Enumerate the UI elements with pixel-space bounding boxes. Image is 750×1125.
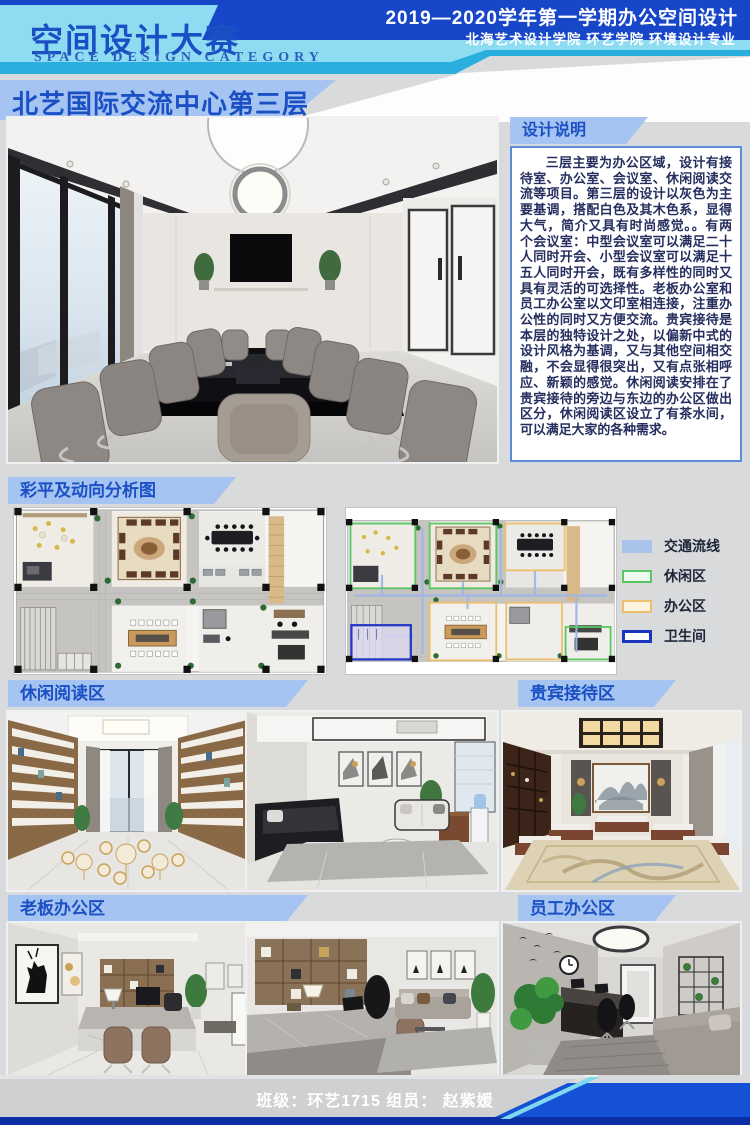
project-banner: 北艺国际交流中心第三层	[12, 84, 309, 121]
bench	[204, 1021, 236, 1033]
design-notes-label: 设计说明	[510, 117, 648, 144]
reading-room-plan	[19, 512, 94, 587]
legend-item-leisure: 休闲区	[622, 566, 748, 586]
floor-plan-analysis	[346, 508, 616, 674]
lounge-photo	[247, 712, 497, 890]
section-label-boss-office: 老板办公区	[8, 895, 308, 922]
legend-swatch-bathroom	[622, 630, 652, 643]
design-notes-text: 三层主要为办公区域，设计有接待室、办公室、会议室、休闲阅读交流等项目。第三层的设…	[520, 155, 732, 438]
lattice-ceiling-light	[579, 718, 663, 748]
plant	[185, 974, 207, 1008]
legend: 交通流线 休闲区 办公区 卫生间	[622, 536, 748, 656]
legend-swatch-leisure	[622, 570, 652, 583]
vip-room-plan	[112, 512, 187, 587]
boss-office-photo-2	[247, 923, 497, 1075]
meeting-room-plan	[112, 606, 187, 672]
plant	[165, 802, 183, 830]
section-label-leisure-reading: 休闲阅读区	[8, 680, 308, 707]
white-loveseat	[395, 800, 449, 830]
legend-swatch-traffic	[622, 540, 652, 553]
school-line: 北海艺术设计学院 环艺学院 环境设计专业	[465, 28, 736, 48]
ceiling-vent	[397, 721, 437, 733]
wall-panel	[651, 760, 671, 816]
right-offices-plan	[199, 606, 323, 672]
conference-room-photo	[8, 118, 497, 462]
banner-floor: 第三层	[228, 89, 309, 119]
plant	[319, 250, 341, 282]
staff-office-photo	[503, 923, 740, 1075]
analysis-label: 彩平及动向分析图	[8, 477, 236, 504]
deer-artwork	[16, 945, 82, 1003]
reading-room-photo	[8, 712, 247, 890]
legend-item-traffic: 交通流线	[622, 536, 748, 556]
vip-reception-photo	[503, 712, 740, 890]
zone-bathroom	[351, 625, 410, 659]
desk-chair	[364, 975, 390, 1019]
page-subtitle: SPACE DESIGN CATEGORY	[34, 50, 324, 66]
plant	[74, 805, 90, 831]
section-label-vip-reception: 贵宾接待区	[518, 680, 676, 707]
landscape-painting	[593, 764, 649, 812]
floor-plan-color	[14, 508, 326, 674]
boss-office-photo-1	[8, 923, 247, 1075]
display-cabinet	[503, 742, 551, 848]
window-curtains	[689, 738, 740, 852]
carpet	[505, 840, 740, 890]
floor-rug	[543, 1035, 671, 1075]
banner-main: 北艺国际交流中心	[12, 89, 228, 119]
deer-artworks	[407, 951, 475, 979]
ceiling-light	[594, 927, 648, 951]
legend-item-bathroom: 卫生间	[622, 626, 748, 646]
artworks	[339, 752, 421, 786]
wall-clock	[560, 956, 578, 974]
session-title: 2019—2020学年第一学期办公空间设计	[385, 3, 738, 30]
design-poster: 空间设计大赛 SPACE DESIGN CATEGORY 2019—2020学年…	[0, 0, 750, 1125]
right-wall-doors	[403, 198, 497, 354]
legend-swatch-office	[622, 600, 652, 613]
design-notes-box: 三层主要为办公区域，设计有接待室、办公室、会议室、休闲阅读交流等项目。第三层的设…	[510, 146, 742, 462]
window	[86, 746, 172, 838]
plant	[194, 253, 214, 283]
wood-deck	[269, 516, 285, 603]
plant	[572, 793, 586, 815]
door	[232, 993, 246, 1045]
sofa	[395, 989, 471, 1019]
footer-credits: 班级：环艺1715 组员： 赵紫媛	[0, 1087, 750, 1111]
legend-item-office: 办公区	[622, 596, 748, 616]
conference-room-plan	[199, 512, 265, 587]
plant	[471, 973, 495, 1013]
section-label-staff-office: 员工办公区	[518, 895, 676, 922]
